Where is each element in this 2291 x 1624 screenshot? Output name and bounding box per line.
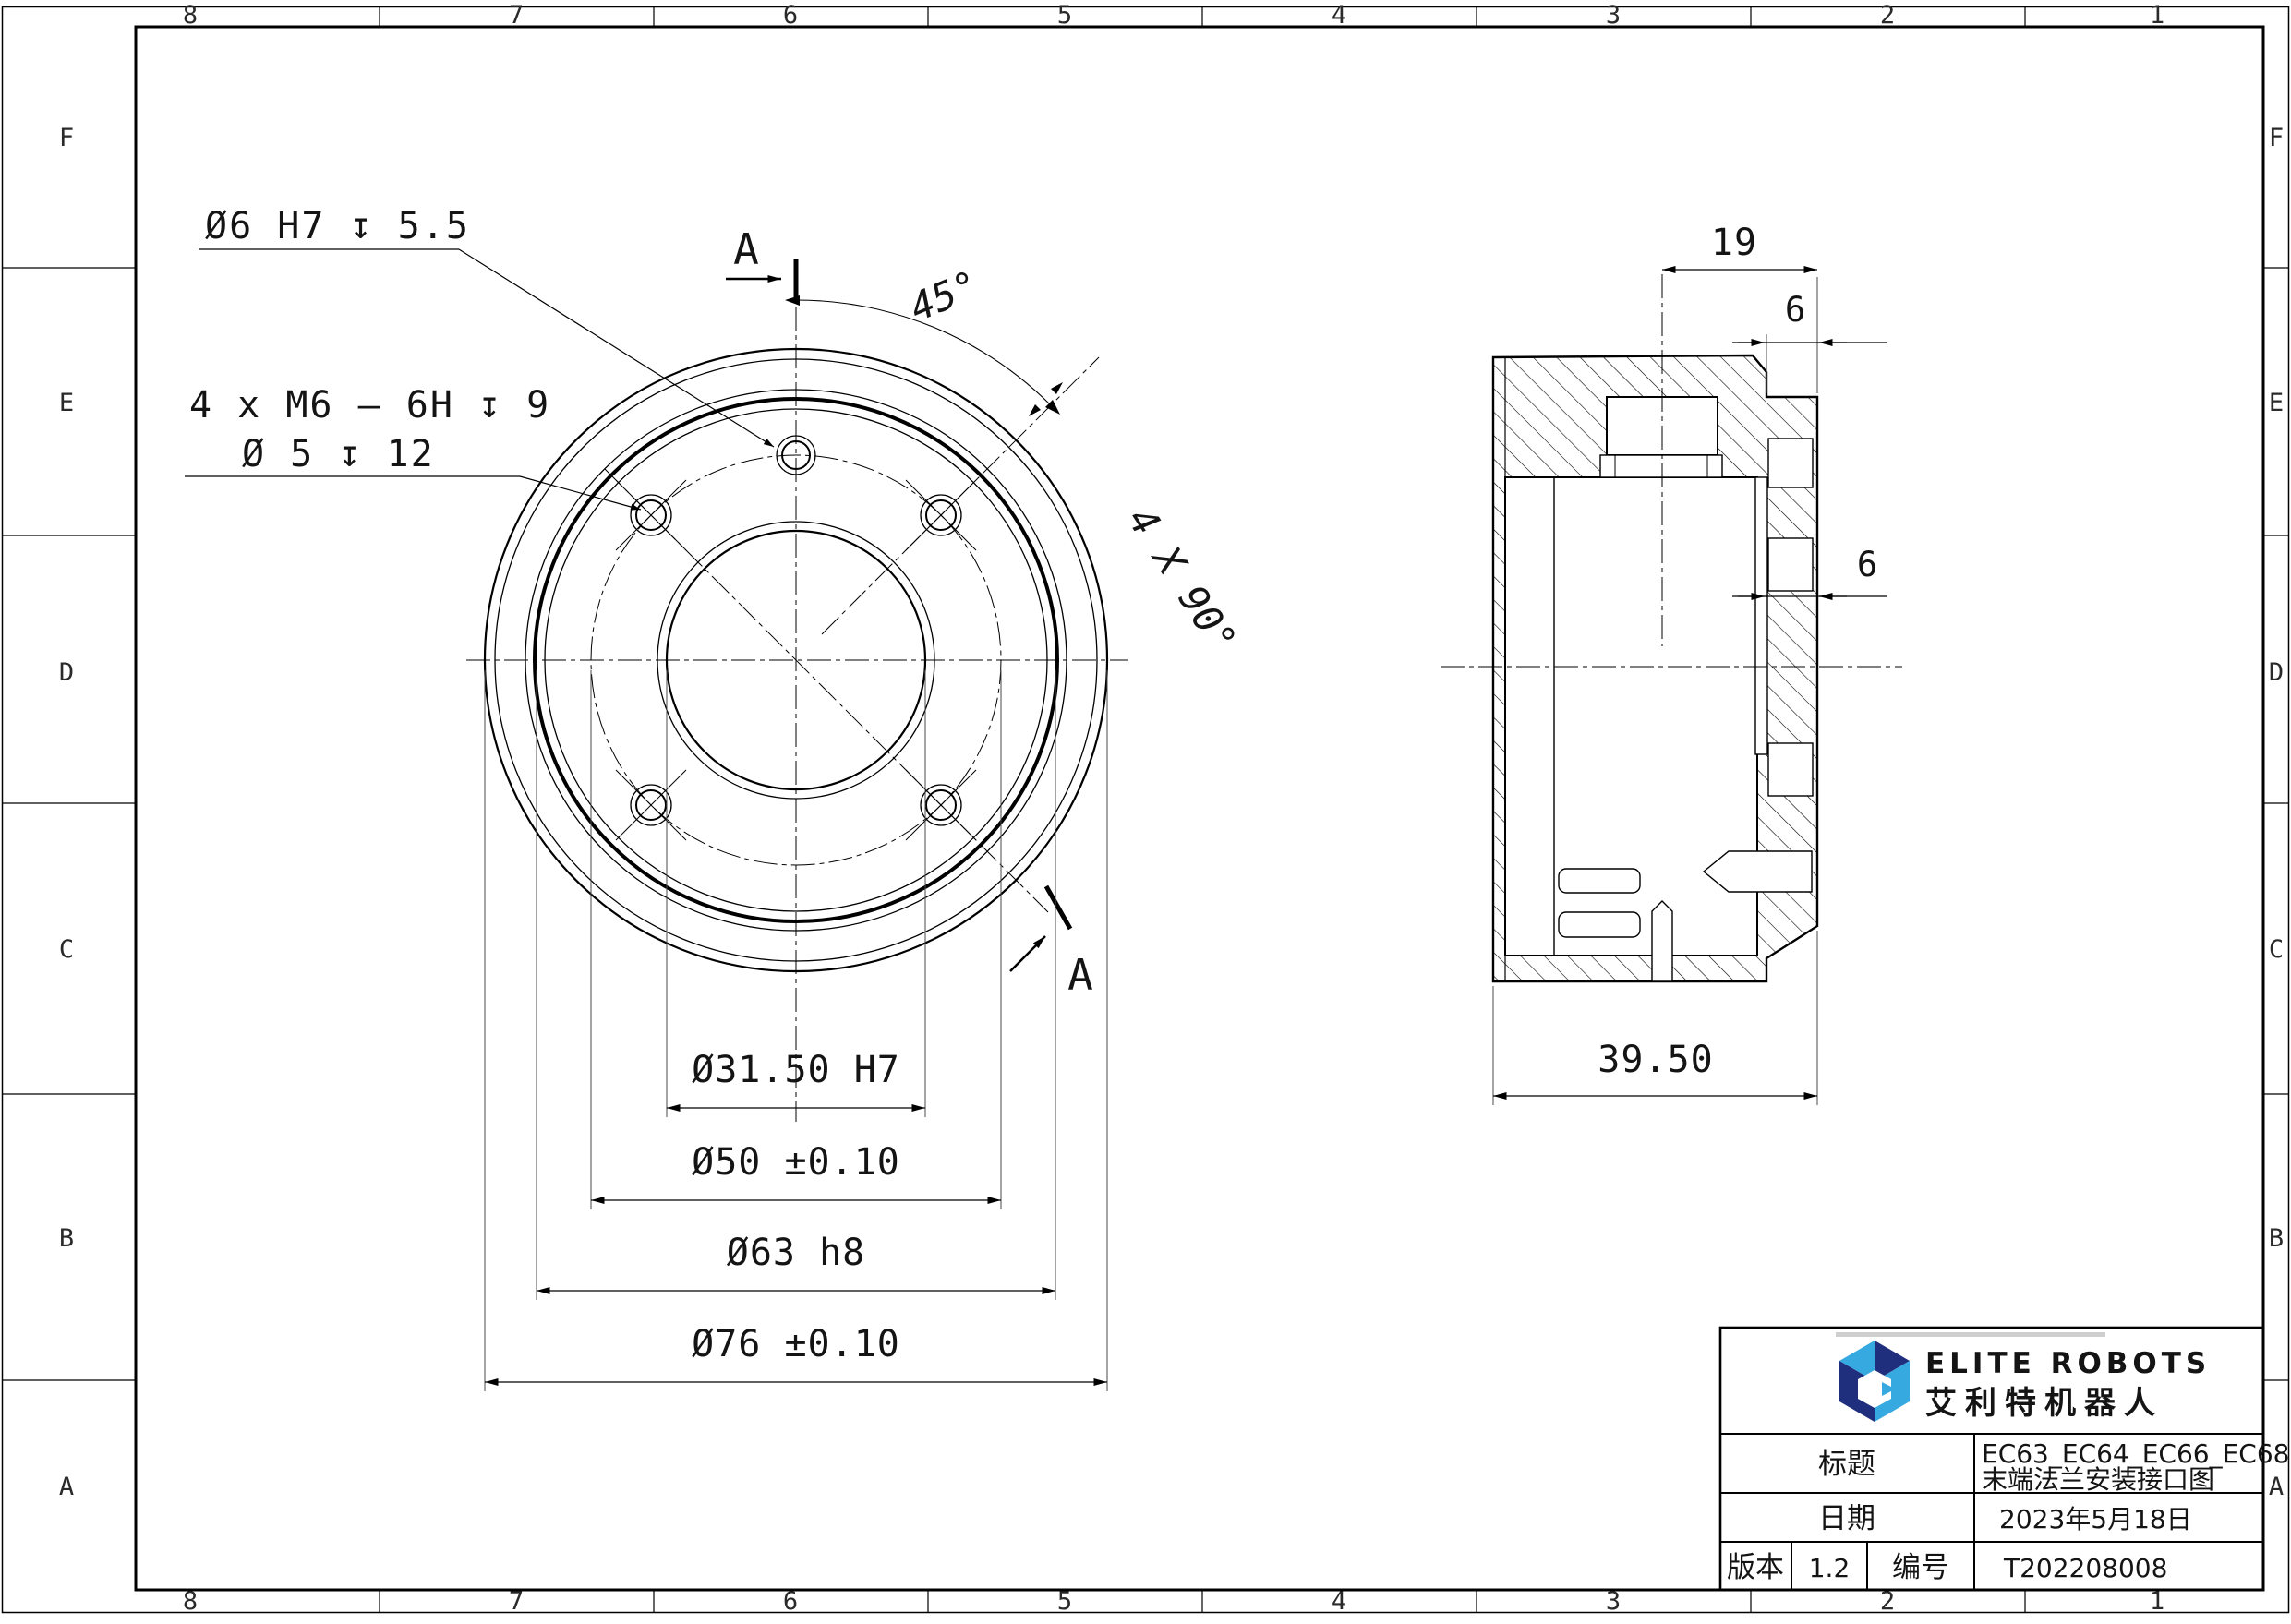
number-label: 编号 <box>1892 1551 1949 1584</box>
dim-boss-height: 6 <box>1785 290 1805 330</box>
version-label: 版本 <box>1727 1551 1784 1584</box>
zone-row: D <box>2269 658 2284 687</box>
front-view: A A 45° 4 X 90° Ø6 H7 ↧ 5.5 4 x M6 – 6H … <box>185 205 1246 1391</box>
plate-hole <box>1768 538 1813 591</box>
zone-labels-right: F E D C B A <box>2269 124 2284 1501</box>
centerlines <box>466 307 1128 1122</box>
zone-row: B <box>2269 1224 2284 1253</box>
zone-row: D <box>59 658 74 687</box>
zone-col: 2 <box>1880 1 1895 30</box>
zone-row: F <box>2269 124 2284 152</box>
date-value: 2023年5月18日 <box>1999 1504 2192 1534</box>
brand-logo: ELITE ROBOTS 艾利特机器人 <box>1836 1332 2211 1422</box>
pin-hole-void <box>1652 901 1672 981</box>
zone-row: B <box>59 1224 74 1253</box>
logo-divider <box>1836 1332 2105 1337</box>
zone-row: A <box>59 1473 74 1501</box>
engineering-drawing: 8 7 6 5 4 3 2 1 8 7 6 5 4 3 2 1 F E D C … <box>0 0 2291 1619</box>
title-value-line2: 末端法兰安装接口图 <box>1982 1464 2214 1495</box>
plate-hole <box>1768 743 1813 796</box>
pattern-dimension-4x90: 4 X 90° <box>1029 382 1246 661</box>
zone-labels-bottom: 8 7 6 5 4 3 2 1 <box>183 1587 2164 1616</box>
zone-col: 6 <box>783 1 798 30</box>
threaded-hole <box>616 480 686 550</box>
angle-45-label: 45° <box>903 261 985 331</box>
zone-row: C <box>59 935 74 964</box>
zone-col: 8 <box>183 1 198 30</box>
number-value: T202208008 <box>2003 1553 2167 1583</box>
zone-labels-top: 8 7 6 5 4 3 2 1 <box>183 1 2164 30</box>
dim-boss: Ø63 h8 <box>727 1232 866 1274</box>
threaded-hole <box>906 480 976 550</box>
ring-gap <box>1755 477 1767 754</box>
bottom-slot <box>1559 912 1640 937</box>
drawing-sheet: 8 7 6 5 4 3 2 1 8 7 6 5 4 3 2 1 F E D C … <box>0 0 2291 1619</box>
dowel-hole-callout: Ø6 H7 ↧ 5.5 <box>205 205 470 247</box>
zone-col: 5 <box>1057 1587 1072 1616</box>
threaded-hole <box>906 770 976 840</box>
zone-col: 7 <box>509 1587 524 1616</box>
elite-robots-logo-icon <box>1839 1341 1910 1422</box>
title-block: ELITE ROBOTS 艾利特机器人 标题 EC63_EC64_EC66_EC… <box>1720 1328 2289 1590</box>
zone-row: F <box>59 124 74 152</box>
date-label: 日期 <box>1818 1502 1875 1535</box>
zone-col: 3 <box>1606 1 1621 30</box>
pattern-angle-label: 4 X 90° <box>1118 499 1246 661</box>
brand-name-en: ELITE ROBOTS <box>1925 1347 2211 1380</box>
zone-row: E <box>59 389 74 417</box>
zone-col: 6 <box>783 1587 798 1616</box>
tapped-hole-collar <box>1600 455 1722 477</box>
threaded-holes-callout-line1: 4 x M6 – 6H ↧ 9 <box>189 384 550 427</box>
brand-name-cn: 艾利特机器人 <box>1925 1385 2164 1422</box>
dim-bore: Ø31.50 H7 <box>692 1049 900 1091</box>
zone-col: 1 <box>2150 1587 2164 1616</box>
threaded-hole <box>616 770 686 840</box>
zone-col: 4 <box>1332 1587 1346 1616</box>
dim-plate-thickness: 6 <box>1857 545 1877 584</box>
callouts: Ø6 H7 ↧ 5.5 4 x M6 – 6H ↧ 9 Ø 5 ↧ 12 <box>185 205 774 510</box>
dim-bolt-circle: Ø50 ±0.10 <box>692 1141 900 1184</box>
title-label: 标题 <box>1818 1448 1875 1481</box>
version-value: 1.2 <box>1809 1553 1851 1583</box>
zone-labels-left: F E D C B A <box>59 124 74 1501</box>
section-label-top: A <box>733 224 759 274</box>
dim-hole-offset: 19 <box>1711 222 1757 264</box>
zone-row: A <box>2269 1473 2284 1501</box>
threaded-holes-callout-line2: Ø 5 ↧ 12 <box>242 433 435 475</box>
zone-col: 4 <box>1332 1 1346 30</box>
zone-col: 8 <box>183 1587 198 1616</box>
zone-col: 2 <box>1880 1587 1895 1616</box>
zone-row: C <box>2269 935 2284 964</box>
dim-overall-depth: 39.50 <box>1598 1039 1713 1081</box>
section-label-bottom: A <box>1067 950 1093 1000</box>
plate-hole <box>1768 439 1813 487</box>
section-view: 19 6 6 39.50 <box>1441 222 1902 1105</box>
zone-row: E <box>2269 389 2284 417</box>
zone-col: 5 <box>1057 1 1072 30</box>
zone-col: 1 <box>2150 1 2164 30</box>
bottom-slot <box>1559 869 1640 893</box>
dim-outer: Ø76 ±0.10 <box>692 1323 900 1365</box>
zone-col: 7 <box>509 1 524 30</box>
zone-col: 3 <box>1606 1587 1621 1616</box>
